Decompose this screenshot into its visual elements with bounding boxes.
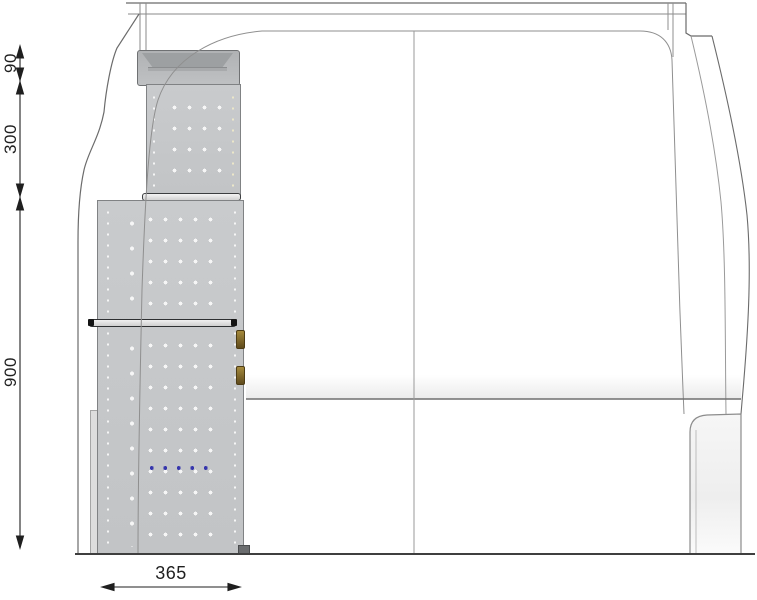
- perforation-grid: [143, 209, 223, 547]
- arrowhead-right: [228, 584, 240, 591]
- perforation-column: [104, 207, 112, 547]
- blue-fastener-row: [145, 462, 215, 474]
- main-shelf-module: [97, 200, 244, 555]
- shelf-edge-cap: [88, 319, 94, 326]
- roof-tray: [137, 50, 240, 86]
- beltline-shading: [246, 375, 741, 399]
- perforation-column: [127, 211, 137, 547]
- floor-anchor: [238, 545, 250, 555]
- arrowhead-up: [17, 198, 24, 210]
- upper-shelf-module: [146, 84, 241, 196]
- rear-wheel-arch: [690, 414, 741, 554]
- arrowhead-left: [102, 584, 114, 591]
- dim-label-lower-height: 900: [3, 350, 19, 394]
- perforation-column: [229, 92, 237, 188]
- rear-frame-outer: [712, 36, 749, 414]
- hook-accessory: [236, 330, 245, 349]
- van-racking-side-view-diagram: 90 300 900 365: [0, 0, 757, 600]
- dim-label-depth: 365: [141, 565, 201, 581]
- shelf-edge-cap: [231, 319, 237, 326]
- arrowhead-down: [17, 536, 24, 548]
- perforation-grid: [167, 97, 229, 187]
- hook-accessory: [236, 366, 245, 385]
- dim-label-tray-height: 90: [3, 41, 19, 85]
- rear-roof-corner: [686, 3, 712, 36]
- rear-frame-inner: [691, 36, 726, 414]
- perforation-column: [150, 92, 158, 188]
- dim-label-upper-height: 300: [3, 117, 19, 161]
- interior-rear-pillar: [640, 31, 684, 414]
- arrowhead-down: [17, 184, 24, 196]
- roof-tray-lip: [148, 67, 227, 71]
- middle-shelf-edge: [88, 319, 237, 327]
